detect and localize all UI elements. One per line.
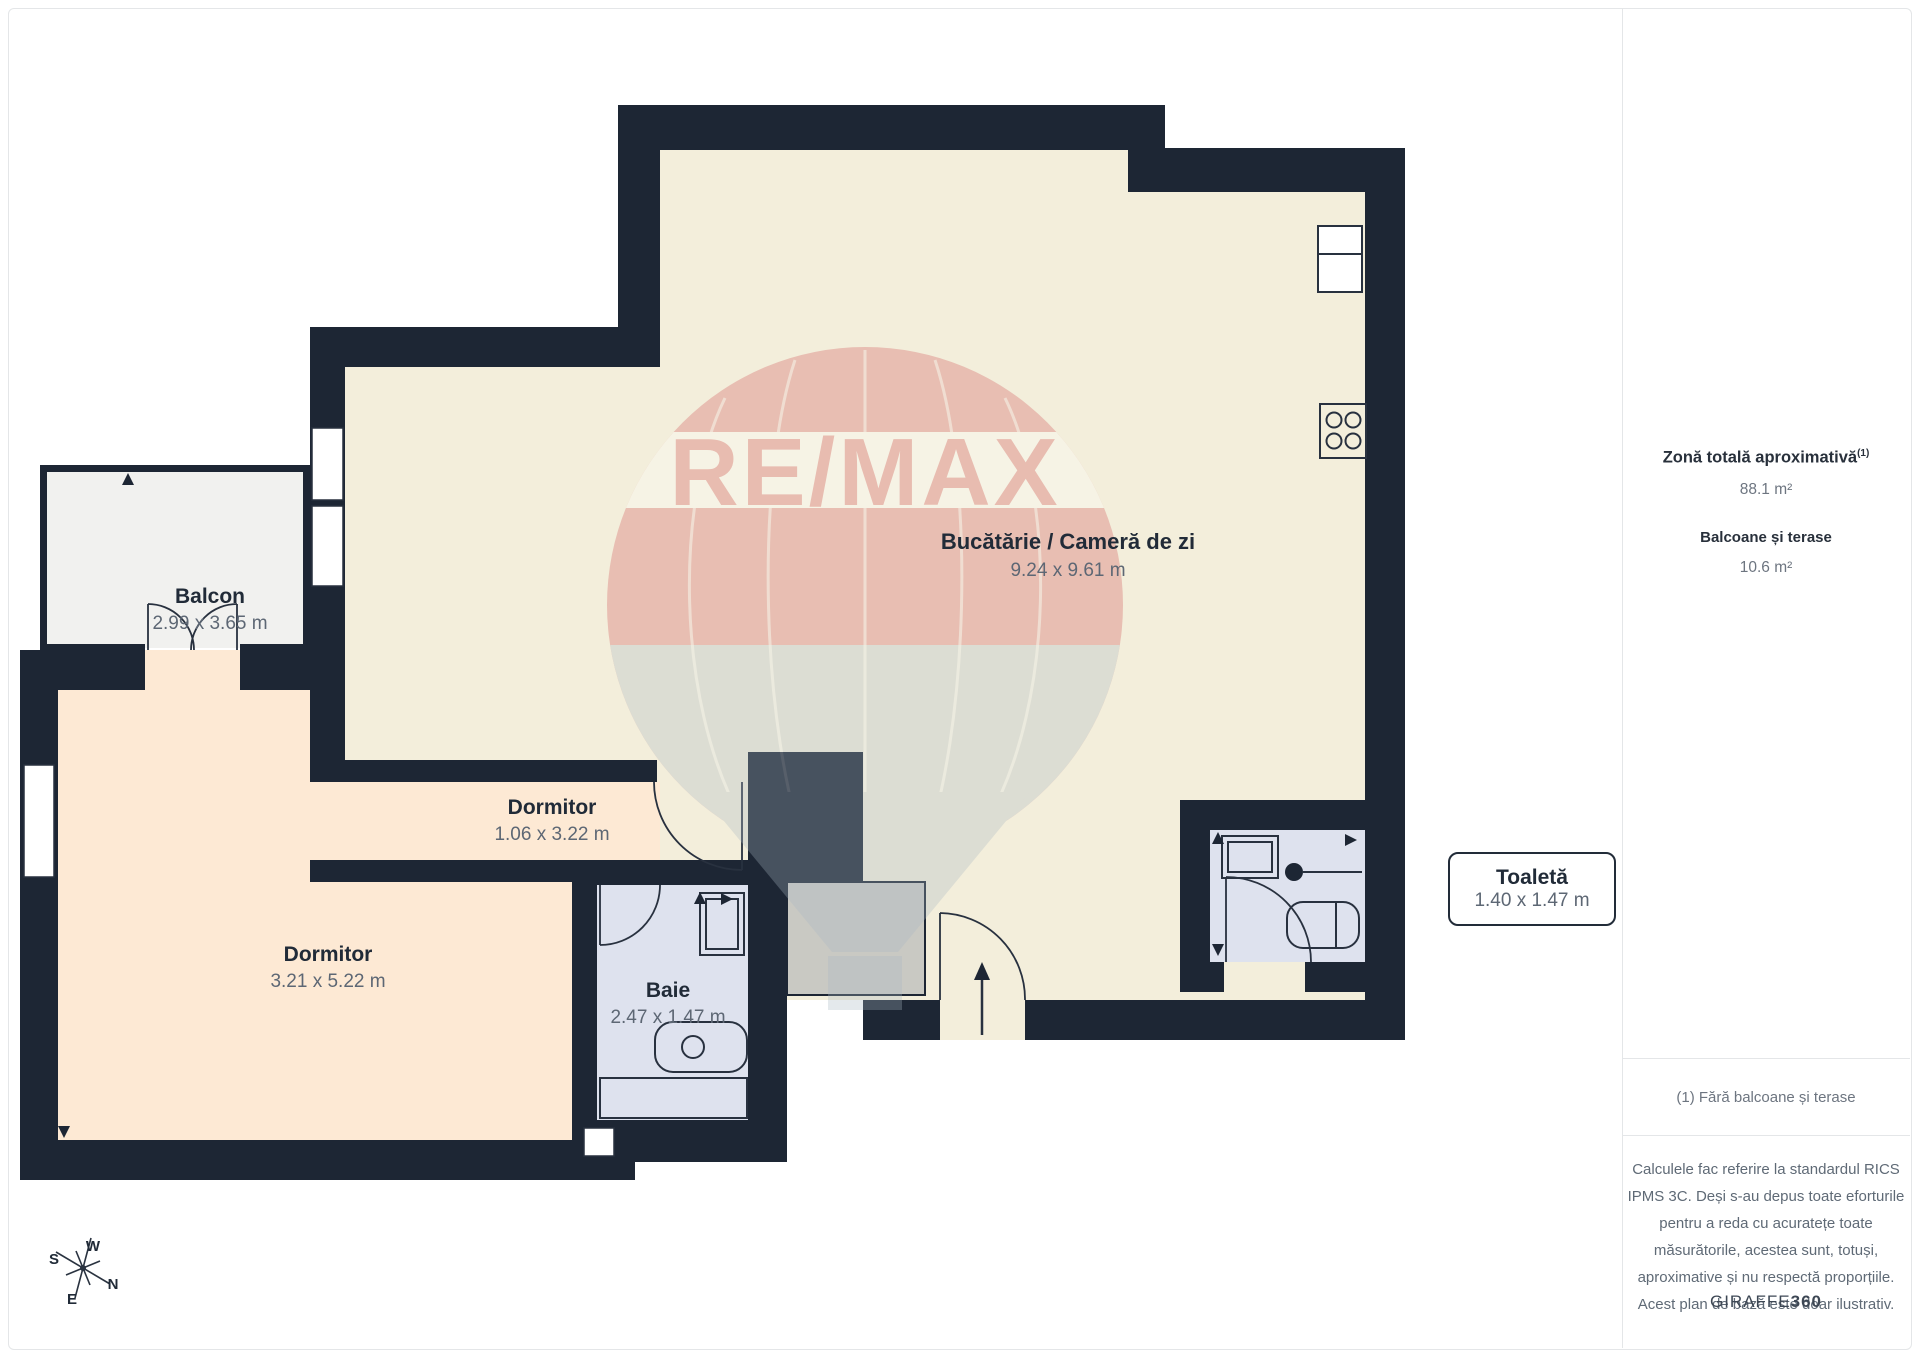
balconies-value: 10.6 m² (1622, 559, 1910, 577)
giraffe360-logo: GIRAFFE360 (1622, 1292, 1910, 1312)
room-dims: 1.06 x 3.22 m (494, 822, 609, 849)
floor-plan-drawing: RE/MAX W S N E (0, 0, 1920, 1358)
compass-center (80, 1265, 86, 1271)
window-living-left-2 (312, 506, 343, 586)
remax-wordmark: RE/MAX (669, 419, 1060, 526)
kitchen-counter (1318, 226, 1362, 292)
room-name: Balcon (152, 582, 267, 611)
total-area-superscript: (1) (1857, 448, 1869, 459)
total-area-value: 88.1 m² (1622, 481, 1910, 499)
balconies-label: Balcoane și terase (1622, 529, 1910, 546)
total-area-label: Zonă totală aproximativă (1663, 449, 1857, 467)
floor-plan-page: { "rooms": { "balcony": {"name": "Balcon… (0, 0, 1920, 1358)
room-label-bathroom: Baie 2.47 x 1.47 m (610, 976, 725, 1032)
room-name: Toaletă (1496, 866, 1568, 890)
window-bedroom-left (24, 765, 54, 877)
room-name: Dormitor (270, 940, 385, 969)
room-dims: 3.21 x 5.22 m (270, 969, 385, 996)
toilet-drain (1285, 863, 1303, 881)
room-dims: 1.40 x 1.47 m (1474, 890, 1589, 912)
room-name: Bucătărie / Cameră de zi (941, 527, 1195, 558)
room-label-toilet: Toaletă 1.40 x 1.47 m (1448, 852, 1616, 926)
compass-south: S (49, 1251, 59, 1268)
room-name: Baie (610, 976, 725, 1005)
room-name: Dormitor (494, 793, 609, 822)
toilet-floor (1210, 830, 1365, 962)
room-dims: 2.99 x 3.65 m (152, 611, 267, 638)
room-dims: 2.47 x 1.47 m (610, 1005, 725, 1032)
brand-suffix: 360 (1791, 1292, 1822, 1311)
room-label-balcony: Balcon 2.99 x 3.65 m (152, 582, 267, 638)
window-bathroom (584, 1128, 614, 1156)
compass: W S N E (49, 1238, 118, 1308)
balcony-door-threshold (145, 650, 240, 690)
room-label-bedroom-small: Dormitor 1.06 x 3.22 m (494, 793, 609, 849)
area-summary: Zonă totală aproximativă(1) 88.1 m² Balc… (1622, 448, 1910, 577)
room-label-bedroom-large: Dormitor 3.21 x 5.22 m (270, 940, 385, 996)
window-living-left-1 (312, 428, 343, 500)
footnote: (1) Fără balcoane și terase (1622, 1058, 1910, 1136)
compass-east: E (67, 1291, 77, 1308)
compass-west: W (86, 1238, 101, 1255)
room-label-kitchen-living: Bucătărie / Cameră de zi 9.24 x 9.61 m (941, 527, 1195, 584)
balloon-basket (828, 956, 902, 1010)
brand-prefix: GIRAFFE (1710, 1292, 1791, 1311)
compass-north: N (108, 1276, 119, 1293)
total-area-title: Zonă totală aproximativă(1) (1622, 448, 1910, 468)
room-dims: 9.24 x 9.61 m (941, 558, 1195, 585)
compass-labels: W S N E (49, 1238, 118, 1308)
